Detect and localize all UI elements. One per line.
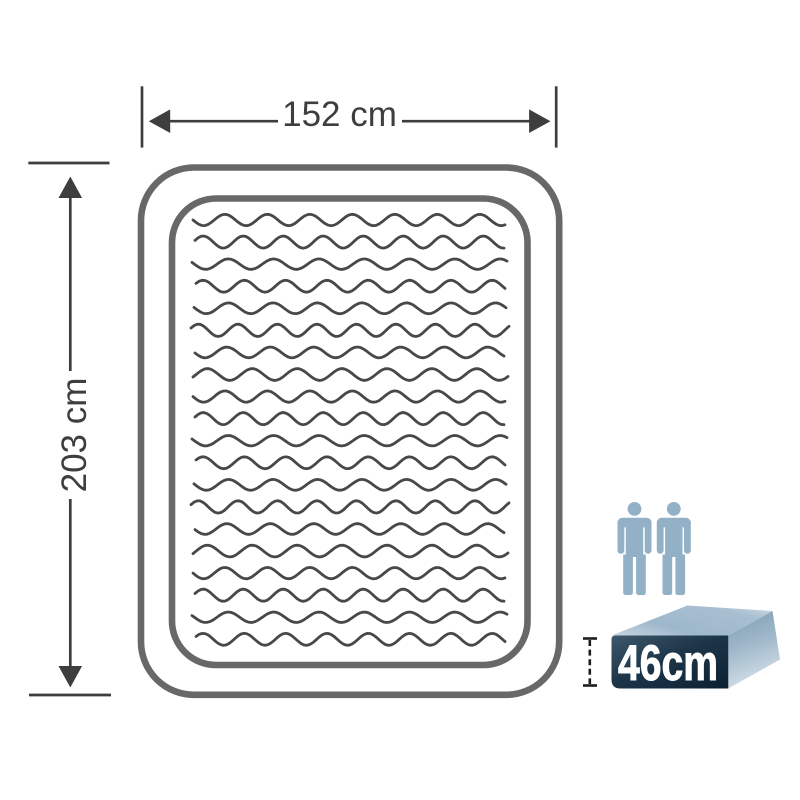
- svg-text:46cm: 46cm: [618, 635, 718, 691]
- svg-text:203 cm: 203 cm: [55, 378, 94, 493]
- svg-text:152 cm: 152 cm: [282, 95, 397, 134]
